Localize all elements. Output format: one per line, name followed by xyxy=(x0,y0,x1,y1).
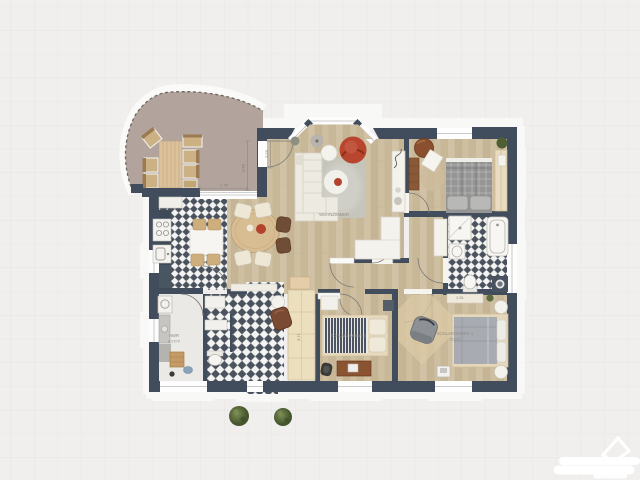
svg-text:3.40: 3.40 xyxy=(241,163,246,172)
svg-text:1.70: 1.70 xyxy=(220,183,229,188)
svg-text:SCHLAFZIMMER 1: SCHLAFZIMMER 1 xyxy=(437,331,474,336)
svg-text:3.71: 3.71 xyxy=(296,332,301,341)
svg-text:15.5m²: 15.5m² xyxy=(449,338,462,342)
svg-text:WOHNZIMMER: WOHNZIMMER xyxy=(319,212,349,217)
svg-text:2.81: 2.81 xyxy=(456,296,463,300)
svg-text:8.27m²: 8.27m² xyxy=(168,340,181,344)
svg-text:HWR: HWR xyxy=(169,333,179,338)
svg-text:SCHLAFZIMMER 2: SCHLAFZIMMER 2 xyxy=(331,333,367,338)
svg-text:2.23: 2.23 xyxy=(264,149,269,158)
